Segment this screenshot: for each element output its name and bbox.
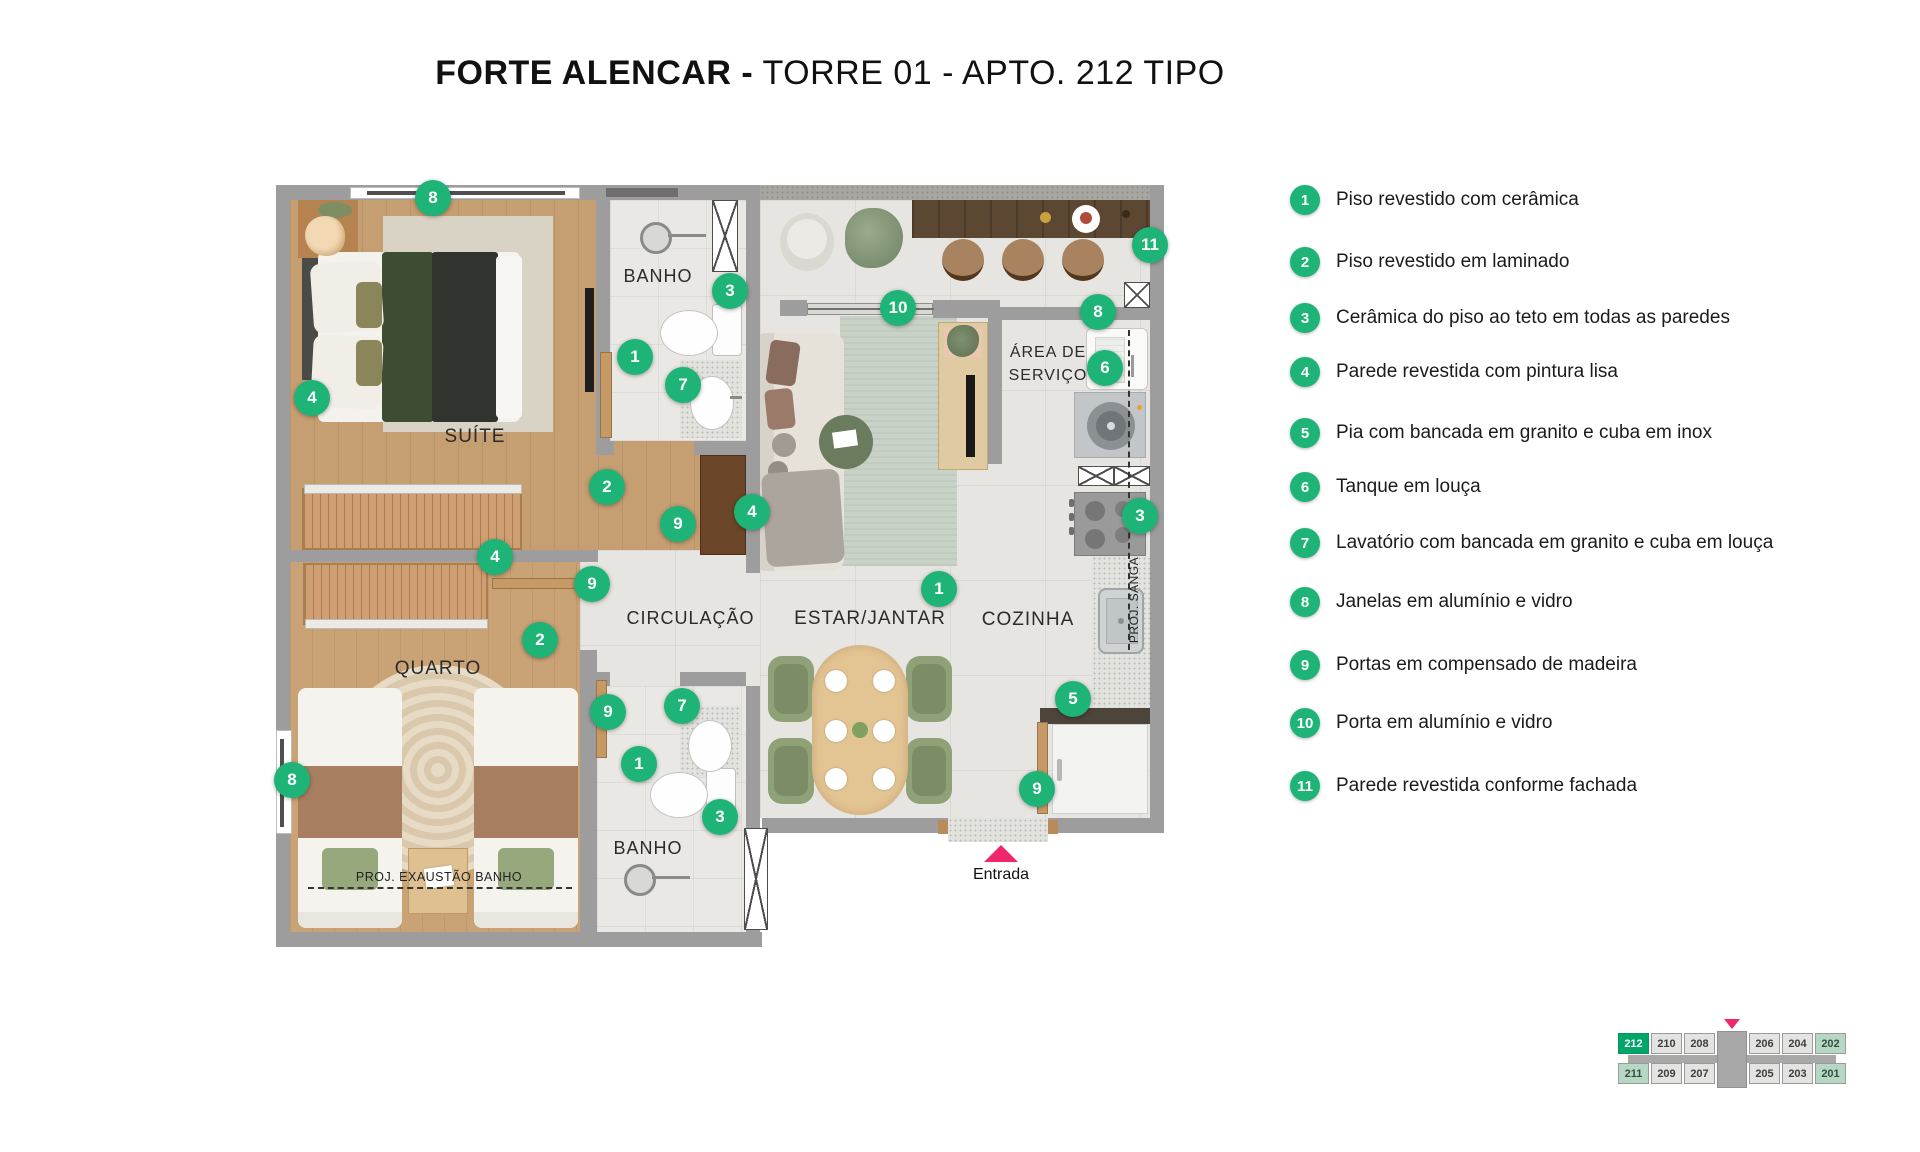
plan-marker-3: 3 [712,273,748,309]
legend-label: Porta em alumínio e vidro [1336,712,1553,734]
legend-label: Piso revestido em laminado [1336,251,1569,273]
unit-key-map: 212210208206204202211209207205203201 [1618,1033,1848,1088]
quarto-door [492,578,577,589]
plan-marker-9: 9 [574,566,610,602]
legend-number-badge: 4 [1290,357,1320,387]
legend-number-badge: 8 [1290,587,1320,617]
banho1-door [600,352,612,438]
unit-cell-209: 209 [1651,1063,1682,1084]
label-circulacao: CIRCULAÇÃO [598,608,783,629]
plan-marker-8: 8 [274,762,310,798]
dining-chair [768,656,814,722]
plan-marker-9: 9 [660,506,696,542]
dining-chair [906,656,952,722]
suite-tv [585,288,594,392]
legend-item-2: 2Piso revestido em laminado [1290,247,1569,277]
legend-label: Pia com bancada em granito e cuba em ino… [1336,422,1712,444]
quarto-bed-1 [298,688,402,928]
legend-label: Parede revestida conforme fachada [1336,775,1637,797]
label-area-servico-1: ÁREA DE [996,344,1100,362]
unit-cell-210: 210 [1651,1033,1682,1054]
unit-cell-202: 202 [1815,1033,1846,1054]
legend-item-3: 3Cerâmica do piso ao teto em todas as pa… [1290,303,1730,333]
plan-marker-2: 2 [522,622,558,658]
area-servico-window-icon [1124,282,1150,308]
unit-cell-212: 212 [1618,1033,1649,1054]
legend-number-badge: 9 [1290,650,1320,680]
bar-counter [912,200,1150,238]
legend-item-5: 5Pia com bancada em granito e cuba em in… [1290,418,1712,448]
legend-number-badge: 5 [1290,418,1320,448]
refrigerator [1052,724,1148,814]
entrada-door-jamb [1048,820,1058,834]
legend-item-6: 6Tanque em louça [1290,472,1481,502]
banho1-toilet-bowl [660,310,718,356]
legend-number-badge: 10 [1290,708,1320,738]
plan-marker-2: 2 [589,469,625,505]
plan-marker-7: 7 [664,688,700,724]
label-banho1: BANHO [600,266,716,287]
unit-cell-205: 205 [1749,1063,1780,1084]
suite-sheet [496,256,522,418]
wall-banho1-door-stub [596,441,614,455]
legend-label: Lavatório com bancada em granito e cuba … [1336,532,1773,554]
banho2-window-icon [744,828,768,930]
banho1-faucet [730,396,742,399]
plan-marker-5: 5 [1055,681,1091,717]
banho2-shower-arm [652,876,690,879]
wall-bottom-cozinha [1048,818,1164,833]
banho1-shower-arm [668,234,706,237]
label-proj-sanga: PROJ. SANGA [1127,540,1141,660]
bar-stool [1062,239,1104,281]
title-project: FORTE ALENCAR - [435,54,753,92]
plan-marker-10: 10 [880,290,916,326]
legend-label: Portas em compensado de madeira [1336,654,1637,676]
title-detail: TORRE 01 - APTO. 212 TIPO [753,54,1225,92]
plan-marker-1: 1 [921,571,957,607]
legend-number-badge: 1 [1290,185,1320,215]
legend-number-badge: 11 [1290,771,1320,801]
legend-item-11: 11Parede revestida conforme fachada [1290,771,1637,801]
legend-number-badge: 2 [1290,247,1320,277]
label-estar: ESTAR/JANTAR [790,608,950,630]
legend-item-4: 4Parede revestida com pintura lisa [1290,357,1618,387]
label-banho2: BANHO [590,838,706,859]
kitchen-window-icon [1114,466,1150,486]
plan-marker-7: 7 [665,367,701,403]
label-proj-exaustao: PROJ. EXAUSTÃO BANHO [329,870,549,884]
plan-marker-1: 1 [621,746,657,782]
suite-duvet-green [382,252,434,422]
legend-number-badge: 6 [1290,472,1320,502]
wall-top-facade [760,185,1164,200]
wall-door10-stub-right [933,300,1000,318]
label-area-servico-2: SERVIÇO [996,367,1100,385]
banho2-shower-icon [624,864,656,896]
proj-exaustao-line [308,887,572,889]
wall-banho2-top [680,672,746,686]
banho2-toilet-bowl [650,772,708,818]
unit-cell-203: 203 [1782,1063,1813,1084]
wall-area-servico-left [988,316,1002,464]
wall-suite-quarto [276,550,598,562]
unit-map-arrow-icon [1724,1019,1740,1029]
banho1-shower-icon [640,222,672,254]
washing-machine [1074,392,1146,458]
legend-number-badge: 3 [1290,303,1320,333]
kitchen-lower-counter [1040,708,1150,724]
suite-lamp [305,216,345,256]
label-cozinha: COZINHA [965,609,1091,631]
plan-marker-1: 1 [617,339,653,375]
suite-cushion-olive [356,282,382,328]
plan-marker-9: 9 [1019,771,1055,807]
bar-stool [942,239,984,281]
wall-bottom-estar [762,818,948,833]
legend-item-8: 8Janelas em alumínio e vidro [1290,587,1573,617]
dining-table [812,645,908,815]
plan-marker-9: 9 [590,694,626,730]
unit-map-core [1717,1031,1747,1088]
plan-marker-3: 3 [1122,498,1158,534]
unit-cell-211: 211 [1618,1063,1649,1084]
plan-marker-8: 8 [1080,294,1116,330]
banho1-top-window [606,188,678,197]
wall-area-servico-top [1000,307,1150,320]
plan-marker-4: 4 [734,494,770,530]
legend-label: Cerâmica do piso ao teto em todas as par… [1336,307,1730,329]
plan-marker-8: 8 [415,180,451,216]
plan-marker-11: 11 [1132,227,1168,263]
banho2-sink-bowl [688,720,732,772]
tv-bench [938,322,988,470]
kitchen-window-icon [1078,466,1114,486]
legend-label: Piso revestido com cerâmica [1336,189,1579,211]
quarto-wardrobe [303,563,488,625]
plan-marker-4: 4 [477,539,513,575]
banho1-window-icon [712,200,738,272]
label-suite: SUÍTE [420,426,530,448]
legend-label: Parede revestida com pintura lisa [1336,361,1618,383]
entrada-threshold [948,818,1048,842]
label-entrada: Entrada [951,866,1051,884]
floorplan-page: FORTE ALENCAR - TORRE 01 - APTO. 212 TIP… [0,0,1920,1152]
entrada-arrow-icon [984,845,1018,862]
legend-item-9: 9Portas em compensado de madeira [1290,650,1637,680]
estar-armchair [780,213,834,271]
page-title: FORTE ALENCAR - TORRE 01 - APTO. 212 TIP… [280,54,1380,93]
suite-window [350,187,580,199]
suite-cushion-olive [356,340,382,386]
plan-marker-3: 3 [702,799,738,835]
unit-cell-206: 206 [1749,1033,1780,1054]
wall-quarto-banho2 [580,650,597,932]
legend-item-7: 7Lavatório com bancada em granito e cuba… [1290,528,1773,558]
plan-marker-6: 6 [1087,350,1123,386]
unit-cell-201: 201 [1815,1063,1846,1084]
legend-item-1: 1Piso revestido com cerâmica [1290,185,1579,215]
wall-door10-stub-left [780,300,807,316]
plan-marker-4: 4 [294,380,330,416]
legend-item-10: 10Porta em alumínio e vidro [1290,708,1553,738]
entrada-door-jamb [938,820,948,834]
wall-bottom-left [276,932,762,947]
bar-stool [1002,239,1044,281]
legend-label: Tanque em louça [1336,476,1481,498]
legend-label: Janelas em alumínio e vidro [1336,591,1573,613]
dining-chair [906,738,952,804]
label-quarto: QUARTO [383,658,493,680]
unit-cell-208: 208 [1684,1033,1715,1054]
suite-blanket-dark [432,252,498,422]
unit-cell-207: 207 [1684,1063,1715,1084]
legend-number-badge: 7 [1290,528,1320,558]
coffee-table [819,415,873,469]
unit-cell-204: 204 [1782,1033,1813,1054]
dining-chair [768,738,814,804]
quarto-bed-2 [474,688,578,928]
